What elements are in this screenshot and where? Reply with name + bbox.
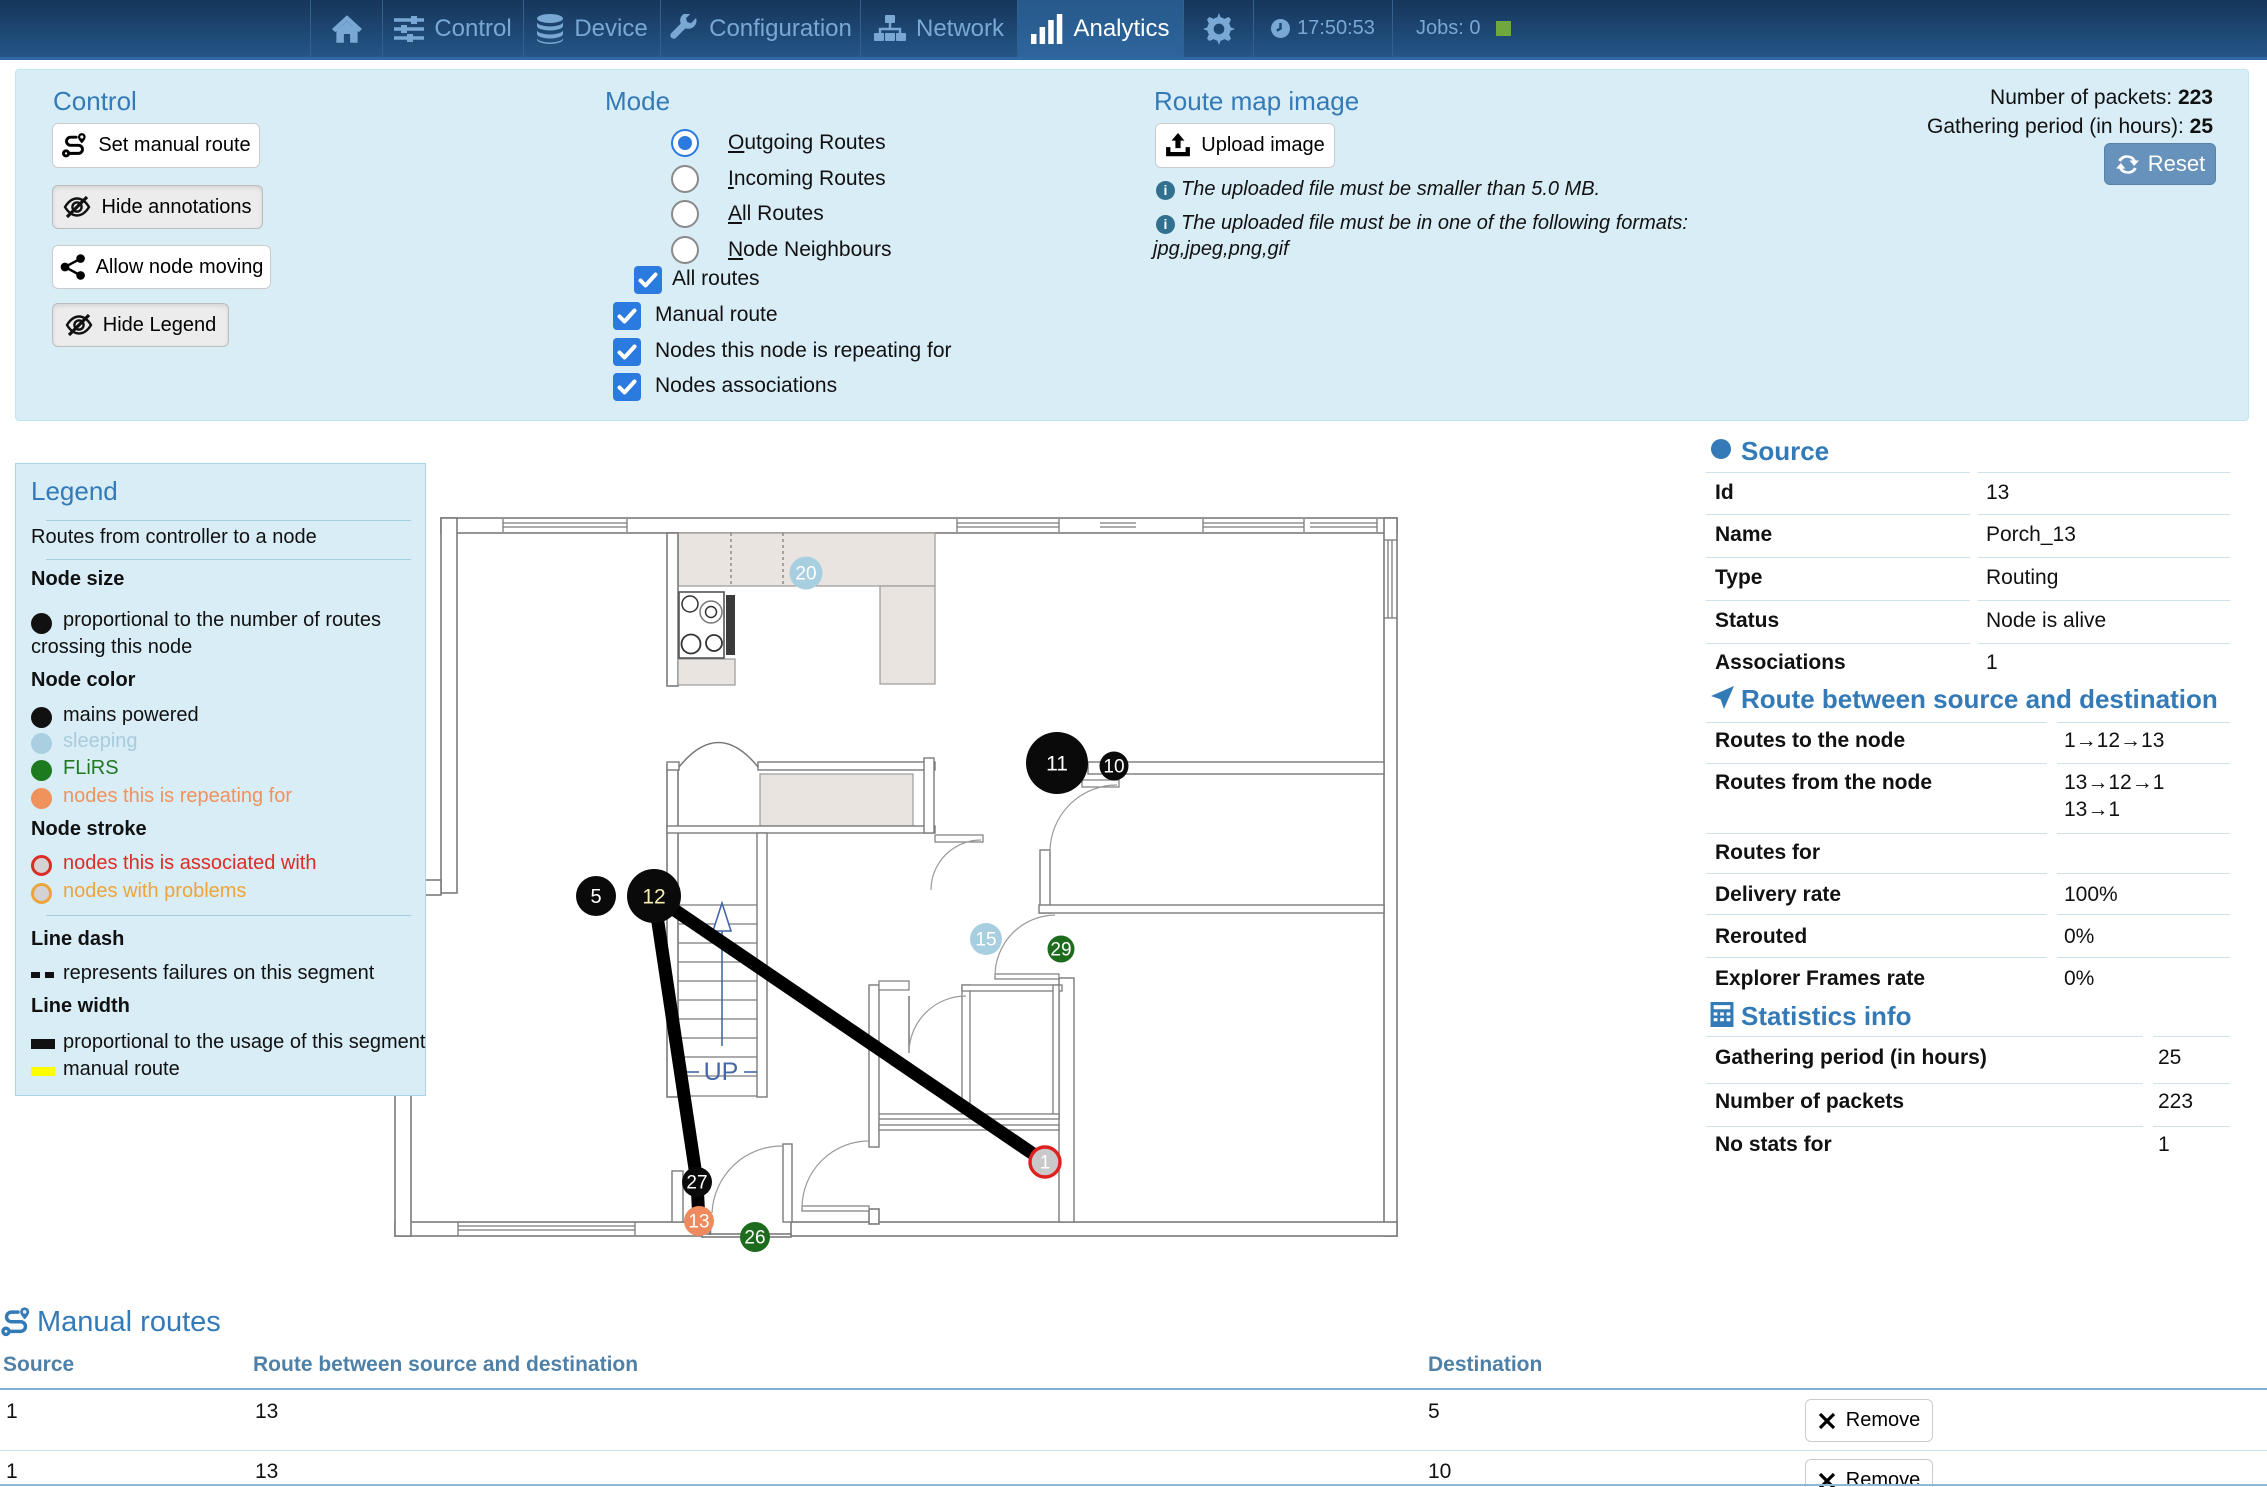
svg-text:1: 1 [1040,1153,1051,1174]
svg-text:26: 26 [744,1228,765,1249]
svg-text:11: 11 [1046,753,1068,776]
svg-text:UP: UP [704,1058,739,1086]
svg-text:13: 13 [688,1212,709,1233]
svg-text:12: 12 [642,886,665,909]
svg-text:15: 15 [975,930,996,951]
svg-text:20: 20 [795,564,816,585]
svg-text:10: 10 [1103,757,1124,778]
svg-text:27: 27 [686,1173,707,1194]
svg-text:5: 5 [590,886,601,908]
svg-text:29: 29 [1050,940,1071,961]
